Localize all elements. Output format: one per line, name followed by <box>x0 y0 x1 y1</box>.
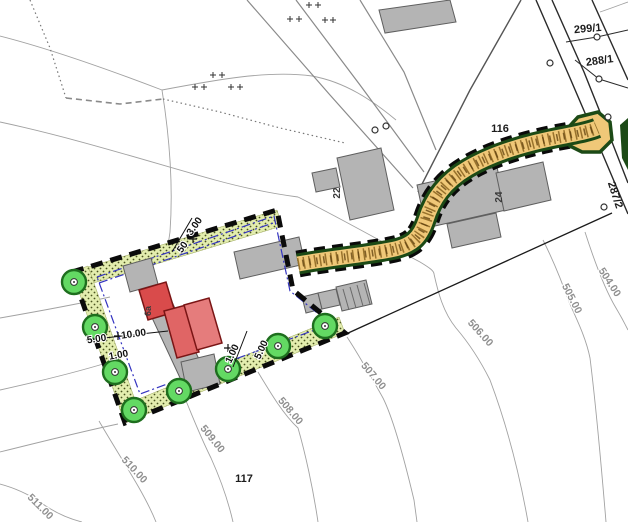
cross-mark-icon <box>306 2 312 8</box>
cross-mark-icon <box>192 84 198 90</box>
contour-label-507-00: 507.00 <box>358 360 388 392</box>
building-top <box>379 0 456 33</box>
tree-icon <box>313 314 337 338</box>
parcel-label-287-2: 287/2 <box>605 180 625 210</box>
survey-point-icon <box>596 76 602 82</box>
cross-mark-icon <box>210 72 216 78</box>
cross-mark-icon <box>322 17 328 23</box>
parcel-label-288-1: 288/1 <box>585 53 614 69</box>
survey-point-icon <box>601 204 607 210</box>
building-mid <box>234 237 305 279</box>
contour-label-511-00: 511.00 <box>25 491 56 522</box>
site-plan-svg: 299/1288/1287/211611722246a504.00505.005… <box>0 0 628 522</box>
contour-label-504-00: 504.00 <box>596 266 624 300</box>
building-label-24: 24 <box>494 191 505 203</box>
dimension-label-10-00: 10.00 <box>120 327 147 341</box>
tree-icon <box>103 360 127 384</box>
contour-label-506-00: 506.00 <box>465 317 496 349</box>
contour-label-510-00: 510.00 <box>119 454 150 486</box>
parcel-label-117: 117 <box>235 473 253 485</box>
contour-label-505-00: 505.00 <box>559 282 584 316</box>
cross-mark-icon <box>296 16 302 22</box>
parcel <box>72 210 345 423</box>
parcel-label-299-1: 299/1 <box>574 22 602 36</box>
survey-point-icon <box>383 123 389 129</box>
tree-icon <box>62 270 86 294</box>
survey-point-icon <box>547 60 553 66</box>
dimension-label-1-00: 1.00 <box>108 348 130 362</box>
building-garage-hatched <box>336 280 372 311</box>
building-label-6a: 6a <box>143 305 153 316</box>
proposed-buildings <box>139 282 222 358</box>
tree-icon <box>122 398 146 422</box>
cross-mark-icon <box>201 84 207 90</box>
survey-point-icon <box>605 114 611 120</box>
cross-mark-icon <box>237 84 243 90</box>
roadside-green-wedge <box>620 118 628 170</box>
building-label-22: 22 <box>332 187 343 199</box>
cross-mark-icon <box>287 16 293 22</box>
cross-mark-icon <box>330 17 336 23</box>
tree-icon <box>167 379 191 403</box>
building-small-2 <box>318 289 340 309</box>
survey-point-icon <box>372 127 378 133</box>
parcel-label-116: 116 <box>491 123 509 135</box>
building-22 <box>337 148 394 220</box>
building-24-upper <box>496 162 551 211</box>
field-boundary-lines <box>30 0 521 192</box>
survey-point-icon <box>594 34 600 40</box>
contour-label-508-00: 508.00 <box>275 395 305 427</box>
site-plan-map: 299/1288/1287/211611722246a504.00505.005… <box>0 0 628 522</box>
cross-mark-icon <box>315 2 321 8</box>
cross-mark-icon <box>228 84 234 90</box>
cross-mark-icon <box>219 72 225 78</box>
